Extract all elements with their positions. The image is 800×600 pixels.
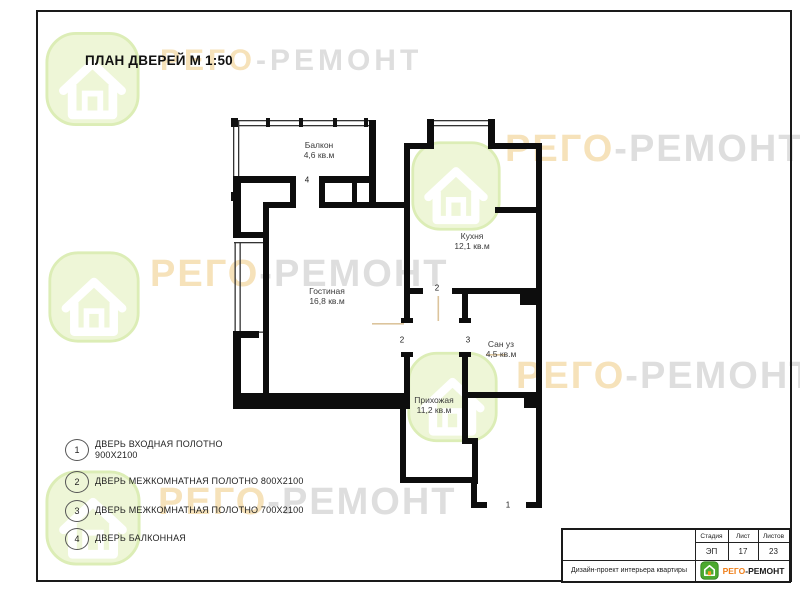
- house-icon: [700, 561, 719, 580]
- project-name: Дизайн-проект интерьера квартиры: [565, 560, 693, 581]
- stage-header: Стадия: [695, 530, 728, 542]
- legend-number-badge: 1: [65, 439, 89, 461]
- door-marker-balcony: 4: [305, 176, 309, 185]
- brand-name: РЕГО-РЕМОНТ: [723, 566, 785, 576]
- title-block: Стадия Лист Листов ЭП 17 23 Дизайн-проек…: [561, 528, 791, 583]
- legend-number-badge: 2: [65, 471, 89, 493]
- room-label-hallway: Прихожая11,2 кв.м: [414, 395, 453, 415]
- rego-remont-logo: РЕГО-РЕМОНТ: [695, 560, 789, 581]
- legend-item-label: ДВЕРЬ БАЛКОННАЯ: [95, 533, 186, 544]
- door-marker-bathroom: 3: [466, 336, 470, 345]
- window-lines: [233, 120, 489, 333]
- legend-item-label: ДВЕРЬ МЕЖКОМНАТНАЯ ПОЛОТНО 700Х2100: [95, 505, 304, 516]
- stage-value: ЭП: [695, 542, 728, 560]
- drawing-title: ПЛАН ДВЕРЕЙ М 1:50: [85, 53, 233, 68]
- legend-number-badge: 4: [65, 528, 89, 550]
- room-label-kitchen: Кухня12,1 кв.м: [454, 231, 489, 251]
- sheets-header: Листов: [758, 530, 789, 542]
- legend-number-badge: 3: [65, 500, 89, 522]
- room-label-living-room: Гостиная16,8 кв.м: [309, 286, 345, 306]
- door-marker-entrance: 1: [506, 501, 510, 510]
- room-label-bathroom: Сан уз4,5 кв.м: [486, 339, 517, 359]
- drawing-sheet: РЕГО-РЕМОНТ РЕГО-РЕМОНТ РЕГО-РЕМОНТ РЕГО…: [0, 0, 800, 600]
- door-marker-kitchen: 2: [435, 284, 439, 293]
- legend-item-label: ДВЕРЬ ВХОДНАЯ ПОЛОТНО900Х2100: [95, 439, 223, 461]
- sheet-value: 17: [728, 542, 758, 560]
- room-label-balcony: Балкон4,6 кв.м: [304, 140, 335, 160]
- walls: [233, 119, 542, 508]
- legend-item-label: ДВЕРЬ МЕЖКОМНАТНАЯ ПОЛОТНО 800Х2100: [95, 476, 304, 487]
- window-ticks: [231, 118, 368, 201]
- sheet-header: Лист: [728, 530, 758, 542]
- door-marker-living: 2: [400, 336, 404, 345]
- sheets-value: 23: [758, 542, 789, 560]
